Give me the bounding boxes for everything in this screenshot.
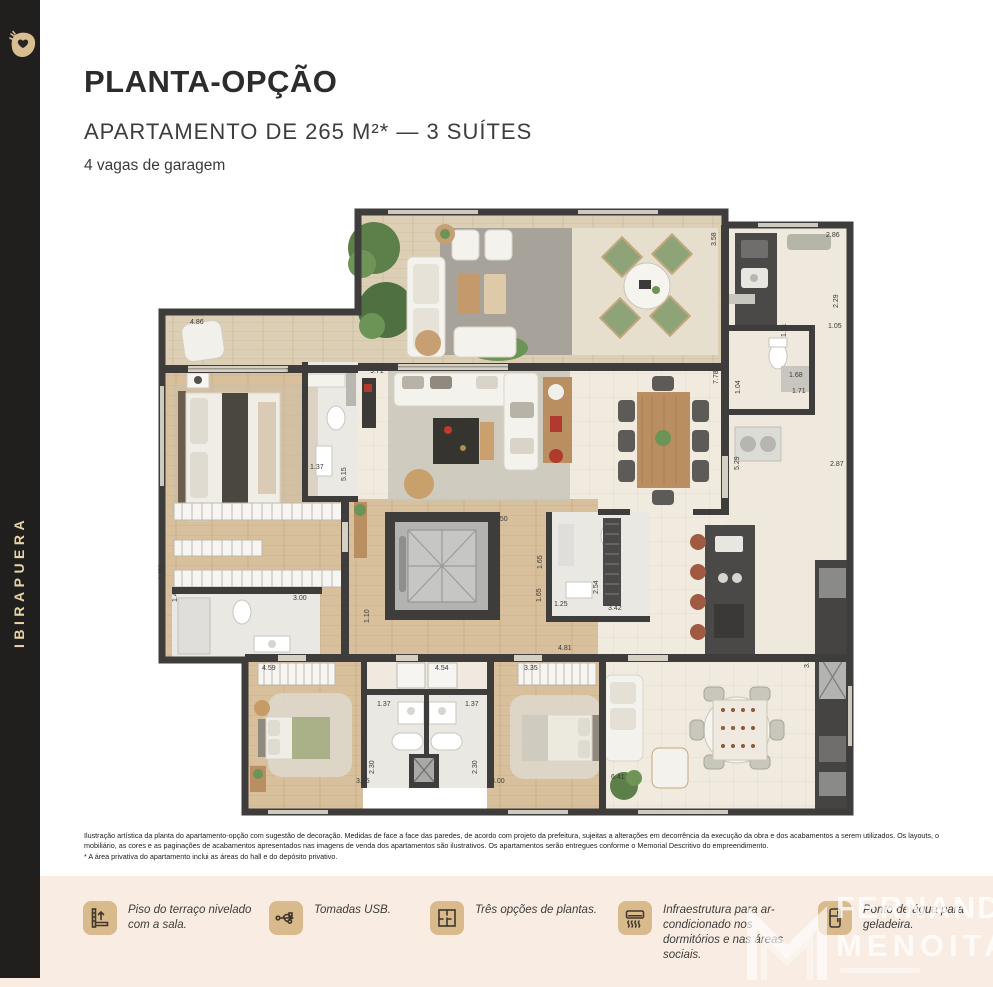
page-title: PLANTA-OPÇÃO [84, 64, 337, 100]
svg-text:1.41: 1.41 [172, 588, 179, 602]
disclaimer-line-3: * A área privativa do apartamento inclui… [84, 852, 986, 862]
svg-text:2.87: 2.87 [830, 461, 844, 468]
svg-text:4.86: 4.86 [190, 319, 204, 326]
svg-text:3.31: 3.31 [804, 654, 811, 668]
svg-text:1.50: 1.50 [494, 516, 508, 523]
svg-text:2.54: 2.54 [593, 580, 600, 594]
svg-text:3.42: 3.42 [286, 368, 300, 375]
svg-text:3.05: 3.05 [356, 778, 370, 785]
svg-text:3.35: 3.35 [524, 665, 538, 672]
svg-text:1.71: 1.71 [792, 388, 806, 395]
svg-text:2.30: 2.30 [472, 760, 479, 774]
svg-text:4.81: 4.81 [558, 645, 572, 652]
svg-text:3.58: 3.58 [711, 232, 718, 246]
svg-text:3.00: 3.00 [293, 595, 307, 602]
page-subtitle: APARTAMENTO DE 265 M²* — 3 SUÍTES [84, 119, 532, 145]
terrace-level-icon [83, 901, 117, 935]
disclaimer-line-2: mobiliário, as cores e as paginações de … [84, 841, 986, 851]
svg-text:5.15: 5.15 [341, 467, 348, 481]
feature-label: Ponto de água para geladeira. [863, 901, 991, 933]
usb-icon [269, 901, 303, 935]
svg-text:1.65: 1.65 [536, 588, 543, 602]
feature-plan-options: Três opções de plantas. [430, 901, 597, 935]
feature-fridge-water: Ponto de água para geladeira. [818, 901, 991, 935]
feature-terrace-level: Piso do terraço nivelado com a sala. [83, 901, 256, 935]
svg-text:1.04: 1.04 [735, 380, 742, 394]
svg-text:4.54: 4.54 [435, 665, 449, 672]
svg-text:6.41: 6.41 [611, 774, 625, 781]
svg-text:5.29: 5.29 [734, 456, 741, 470]
floorplan: 4.863.422.459.711.375.153.582.862.291.05… [158, 206, 878, 818]
svg-text:5.93: 5.93 [158, 565, 164, 579]
svg-text:1.37: 1.37 [310, 464, 324, 471]
floorplan-options-icon [430, 901, 464, 935]
svg-text:9.71: 9.71 [370, 368, 384, 375]
svg-text:4.59: 4.59 [262, 665, 276, 672]
svg-text:3.00: 3.00 [491, 778, 505, 785]
svg-text:1.25: 1.25 [554, 601, 568, 608]
refrigerator-icon [818, 901, 852, 935]
svg-text:7.78: 7.78 [713, 370, 720, 384]
svg-text:1.65: 1.65 [537, 555, 544, 569]
svg-text:1.37: 1.37 [377, 701, 391, 708]
svg-text:2.30: 2.30 [369, 760, 376, 774]
svg-text:1.37: 1.37 [465, 701, 479, 708]
feature-label: Três opções de plantas. [475, 901, 597, 918]
feature-label: Piso do terraço nivelado com a sala. [128, 901, 256, 933]
svg-text:2.29: 2.29 [833, 294, 840, 308]
svg-text:2.45: 2.45 [303, 384, 310, 398]
svg-text:1.10: 1.10 [364, 609, 371, 623]
sidebar: IBIRAPUERA [0, 0, 40, 978]
feature-label: Infraestrutura para ar-condicionado nos … [663, 901, 791, 963]
garage-info: 4 vagas de garagem [84, 157, 225, 175]
svg-text:1.05: 1.05 [828, 323, 842, 330]
svg-text:1.68: 1.68 [789, 372, 803, 379]
feature-label: Tomadas USB. [314, 901, 391, 918]
sidebar-project-name: IBIRAPUERA [11, 516, 27, 648]
feature-air-conditioning: Infraestrutura para ar-condicionado nos … [618, 901, 791, 963]
svg-text:1.51: 1.51 [781, 323, 788, 337]
disclaimer: Ilustração artística da planta do aparta… [84, 831, 986, 862]
svg-text:2.86: 2.86 [826, 232, 840, 239]
feature-usb: Tomadas USB. [269, 901, 391, 935]
air-conditioner-icon [618, 901, 652, 935]
disclaimer-line-1: Ilustração artística da planta do aparta… [84, 831, 986, 841]
svg-text:3.42: 3.42 [608, 605, 622, 612]
brand-logo-icon [7, 29, 39, 63]
